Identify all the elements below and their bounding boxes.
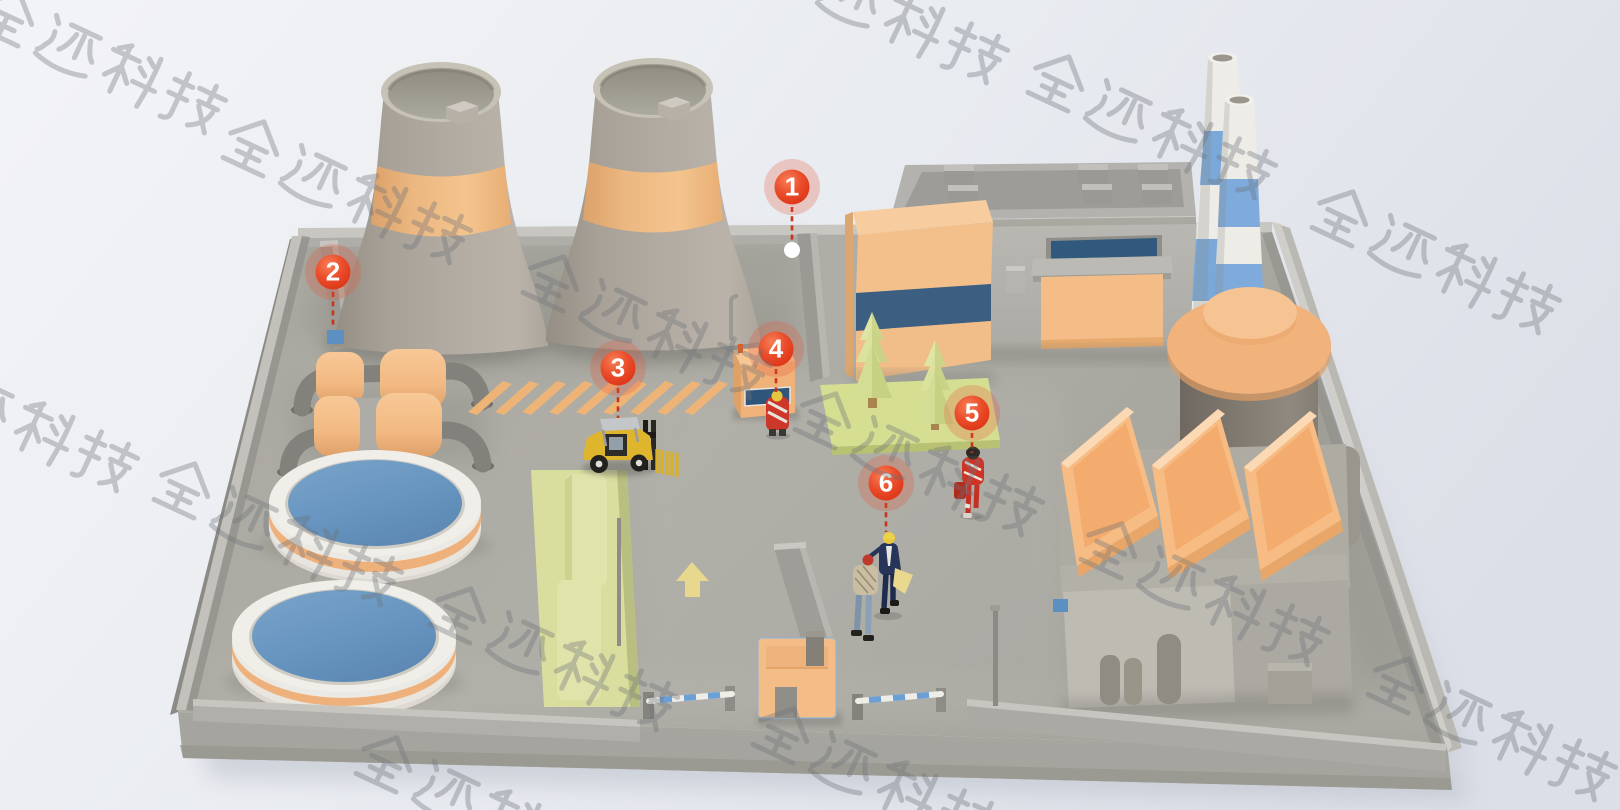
svg-text:2: 2 bbox=[326, 257, 340, 287]
svg-text:3: 3 bbox=[611, 353, 625, 383]
svg-text:1: 1 bbox=[785, 172, 799, 202]
svg-text:4: 4 bbox=[769, 334, 784, 364]
svg-text:5: 5 bbox=[965, 398, 979, 428]
